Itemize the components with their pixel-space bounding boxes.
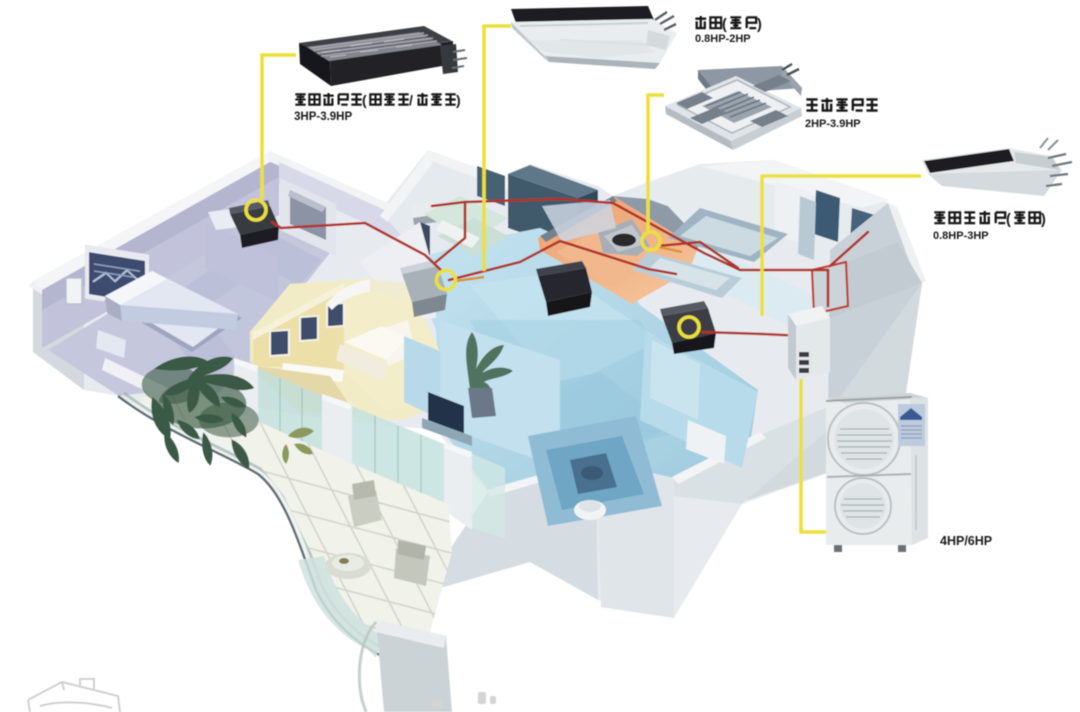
svg-text:2HP-3.9HP: 2HP-3.9HP	[805, 118, 861, 130]
svg-text:4HP/6HP: 4HP/6HP	[940, 534, 992, 548]
svg-text:(: (	[362, 92, 367, 108]
svg-text:/: /	[409, 92, 413, 108]
svg-text:0.8HP-2HP: 0.8HP-2HP	[695, 33, 751, 45]
svg-text:(: (	[722, 17, 727, 33]
svg-text:0.8HP-3HP: 0.8HP-3HP	[933, 230, 989, 242]
svg-text:3HP-3.9HP: 3HP-3.9HP	[294, 111, 352, 123]
svg-text:): )	[456, 92, 461, 108]
svg-text:): )	[757, 17, 762, 33]
svg-text:): )	[1041, 212, 1046, 228]
svg-text:(: (	[1006, 212, 1011, 228]
